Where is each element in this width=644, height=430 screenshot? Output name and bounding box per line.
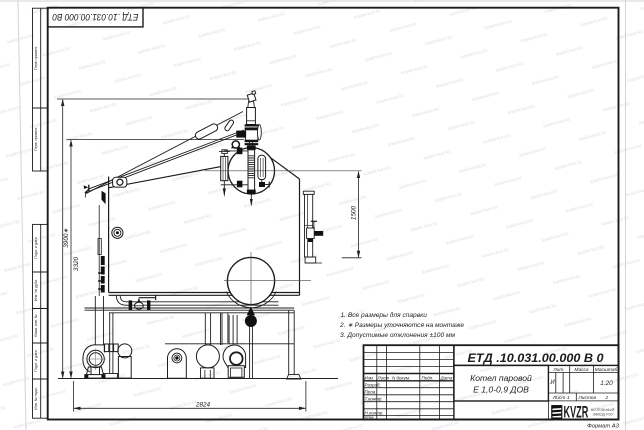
svg-text:Масштаб: Масштаб (595, 367, 618, 373)
svg-text:И: И (550, 380, 555, 386)
svg-text:3320: 3320 (73, 256, 80, 271)
svg-text:Разраб.: Разраб. (365, 383, 381, 388)
svg-text:Перв. примен.: Перв. примен. (34, 127, 38, 151)
svg-text:Дата: Дата (440, 375, 453, 380)
svg-text:Котел паровой: Котел паровой (470, 373, 532, 383)
svg-text:Листов: Листов (578, 395, 597, 401)
svg-text:Е 1,0-0,9 ДОВ: Е 1,0-0,9 ДОВ (473, 384, 529, 394)
svg-text:Т.контр.: Т.контр. (365, 397, 383, 402)
svg-text:KVZR: KVZR (564, 404, 589, 422)
svg-text:Взам. инв. №: Взам. инв. № (34, 314, 38, 336)
svg-text:Лист: Лист (552, 395, 565, 401)
svg-text:Перв. примен.: Перв. примен. (34, 46, 38, 70)
svg-text:3. Допустимые отклонения ±10: 3. Допустимые отклонения ±100 мм (340, 332, 455, 339)
svg-text:Подп.: Подп. (422, 375, 434, 380)
svg-text:N докум.: N докум. (392, 375, 410, 380)
svg-text:Лит.: Лит. (552, 367, 564, 373)
svg-text:3900∗: 3900∗ (63, 228, 70, 248)
svg-text:1:20: 1:20 (600, 380, 613, 387)
svg-text:Масса: Масса (574, 367, 589, 373)
svg-text:1500: 1500 (350, 205, 357, 220)
svg-text:Лист: Лист (377, 375, 390, 380)
svg-text:2: 2 (605, 395, 609, 401)
svg-text:2824: 2824 (195, 401, 211, 408)
svg-text:Пров.: Пров. (365, 390, 377, 395)
svg-text:2. ∗ Размеры уточняются на мон: 2. ∗ Размеры уточняются на монтаже (339, 322, 464, 329)
svg-text:Утв.: Утв. (365, 415, 375, 420)
svg-text:Подп. и дата: Подп. и дата (34, 350, 38, 371)
svg-text:ЕТД .10.031.00.000 В0: ЕТД .10.031.00.000 В0 (52, 12, 138, 22)
svg-text:КОТЕЛЬНЫЙ: КОТЕЛЬНЫЙ (591, 408, 615, 412)
svg-text:ЗАВОД РЭУ: ЗАВОД РЭУ (593, 412, 614, 416)
svg-text:ЕТД .10.031.00.000 В 0: ЕТД .10.031.00.000 В 0 (468, 351, 604, 365)
svg-text:Инв. № подл.: Инв. № подл. (34, 387, 38, 409)
svg-text:Формат А3: Формат А3 (587, 423, 619, 429)
svg-text:1. Все размеры для спарвки: 1. Все размеры для спарвки (341, 311, 428, 319)
svg-text:Изм: Изм (365, 375, 373, 380)
svg-text:Инв. № дубл.: Инв. № дубл. (34, 279, 38, 301)
svg-text:1: 1 (567, 395, 570, 401)
svg-text:Подп. и дата: Подп. и дата (34, 237, 38, 258)
